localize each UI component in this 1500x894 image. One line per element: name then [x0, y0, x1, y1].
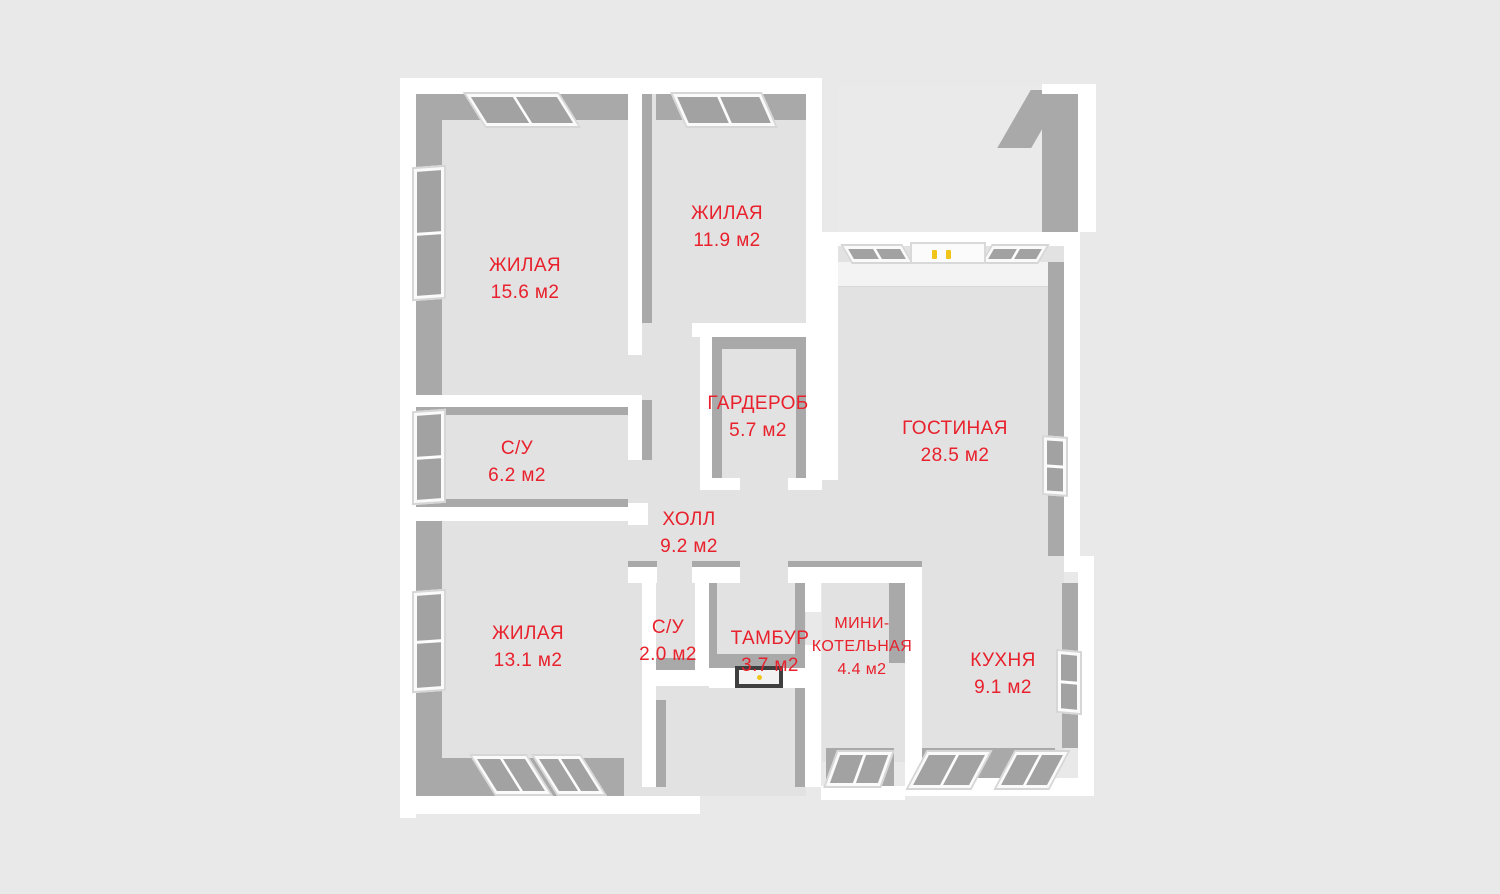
room-name: ГОСТИНАЯ: [902, 415, 1008, 442]
room-area: 9.2 м2: [660, 533, 718, 560]
room-area: 11.9 м2: [691, 227, 763, 254]
room-label-hall: ХОЛЛ 9.2 м2: [660, 506, 718, 560]
window: [1056, 649, 1082, 715]
room-label-kitchen: КУХНЯ 9.1 м2: [970, 647, 1035, 701]
window: [412, 409, 446, 505]
floor: [416, 92, 806, 796]
wall: [416, 507, 648, 521]
room-name: С/У: [488, 435, 546, 462]
wall: [1064, 232, 1080, 562]
room-name: ХОЛЛ: [660, 506, 718, 533]
room-name: КУХНЯ: [970, 647, 1035, 674]
wall: [821, 786, 905, 800]
window: [670, 92, 778, 128]
room-area: 3.7 м2: [731, 652, 810, 679]
room-label-bathroom-2: С/У 2.0 м2: [639, 614, 697, 668]
wall-shadow: [642, 94, 652, 323]
wall-shadow: [1048, 262, 1064, 556]
room-name: ГАРДЕРОБ: [707, 390, 808, 417]
wall: [788, 567, 922, 583]
room-name: ЖИЛАЯ: [691, 200, 763, 227]
wall-shadow: [642, 400, 652, 460]
window: [980, 244, 1050, 264]
balcony-door-handle-icon: [946, 250, 951, 259]
wall: [695, 567, 709, 670]
room-label-living-1: ЖИЛАЯ 15.6 м2: [489, 252, 561, 306]
window: [412, 589, 446, 693]
wall-lit-face: [838, 262, 1048, 287]
wall: [822, 237, 838, 480]
wall: [712, 478, 740, 490]
room-label-living-2: ЖИЛАЯ 11.9 м2: [691, 200, 763, 254]
wall: [788, 478, 806, 490]
room-name: ЖИЛАЯ: [489, 252, 561, 279]
wall: [1042, 84, 1096, 94]
window: [840, 244, 914, 264]
wall: [400, 796, 700, 814]
room-name: ЖИЛАЯ: [492, 620, 564, 647]
room-area: 28.5 м2: [902, 442, 1008, 469]
wall: [628, 503, 648, 525]
room-area: 15.6 м2: [489, 279, 561, 306]
room-label-living-3: ЖИЛАЯ 13.1 м2: [492, 620, 564, 674]
room-name: КОТЕЛЬНАЯ: [812, 635, 912, 658]
room-name: С/У: [639, 614, 697, 641]
wall-shadow: [709, 583, 717, 663]
room-name: МИНИ-: [812, 612, 912, 635]
room-label-bathroom-1: С/У 6.2 м2: [488, 435, 546, 489]
room-area: 6.2 м2: [488, 462, 546, 489]
wall-shadow: [656, 700, 666, 787]
room-label-vestibule: ТАМБУР 3.7 м2: [731, 625, 810, 679]
room-area: 9.1 м2: [970, 674, 1035, 701]
window: [412, 165, 446, 301]
room-name: ТАМБУР: [731, 625, 810, 652]
balcony-door-handle-icon: [932, 250, 937, 259]
wall-shadow: [416, 499, 628, 507]
wall: [628, 567, 657, 583]
wall: [628, 78, 642, 355]
wall-shadow: [712, 337, 806, 349]
window: [1042, 435, 1068, 497]
wall: [642, 670, 709, 686]
wall: [416, 395, 628, 407]
room-area: 4.4 м2: [812, 658, 912, 681]
wall: [1078, 84, 1096, 232]
room-label-mini-boiler: МИНИ- КОТЕЛЬНАЯ 4.4 м2: [812, 612, 912, 681]
room-area: 5.7 м2: [707, 417, 808, 444]
room-area: 2.0 м2: [639, 641, 697, 668]
floor-plan-canvas: ЖИЛАЯ 15.6 м2 ЖИЛАЯ 11.9 м2 ГАРДЕРОБ 5.7…: [0, 0, 1500, 894]
wall: [628, 395, 642, 460]
room-area: 13.1 м2: [492, 647, 564, 674]
wall-shadow: [416, 407, 628, 415]
floor: [806, 480, 822, 570]
room-label-living-room: ГОСТИНАЯ 28.5 м2: [902, 415, 1008, 469]
room-label-wardrobe: ГАРДЕРОБ 5.7 м2: [707, 390, 808, 444]
